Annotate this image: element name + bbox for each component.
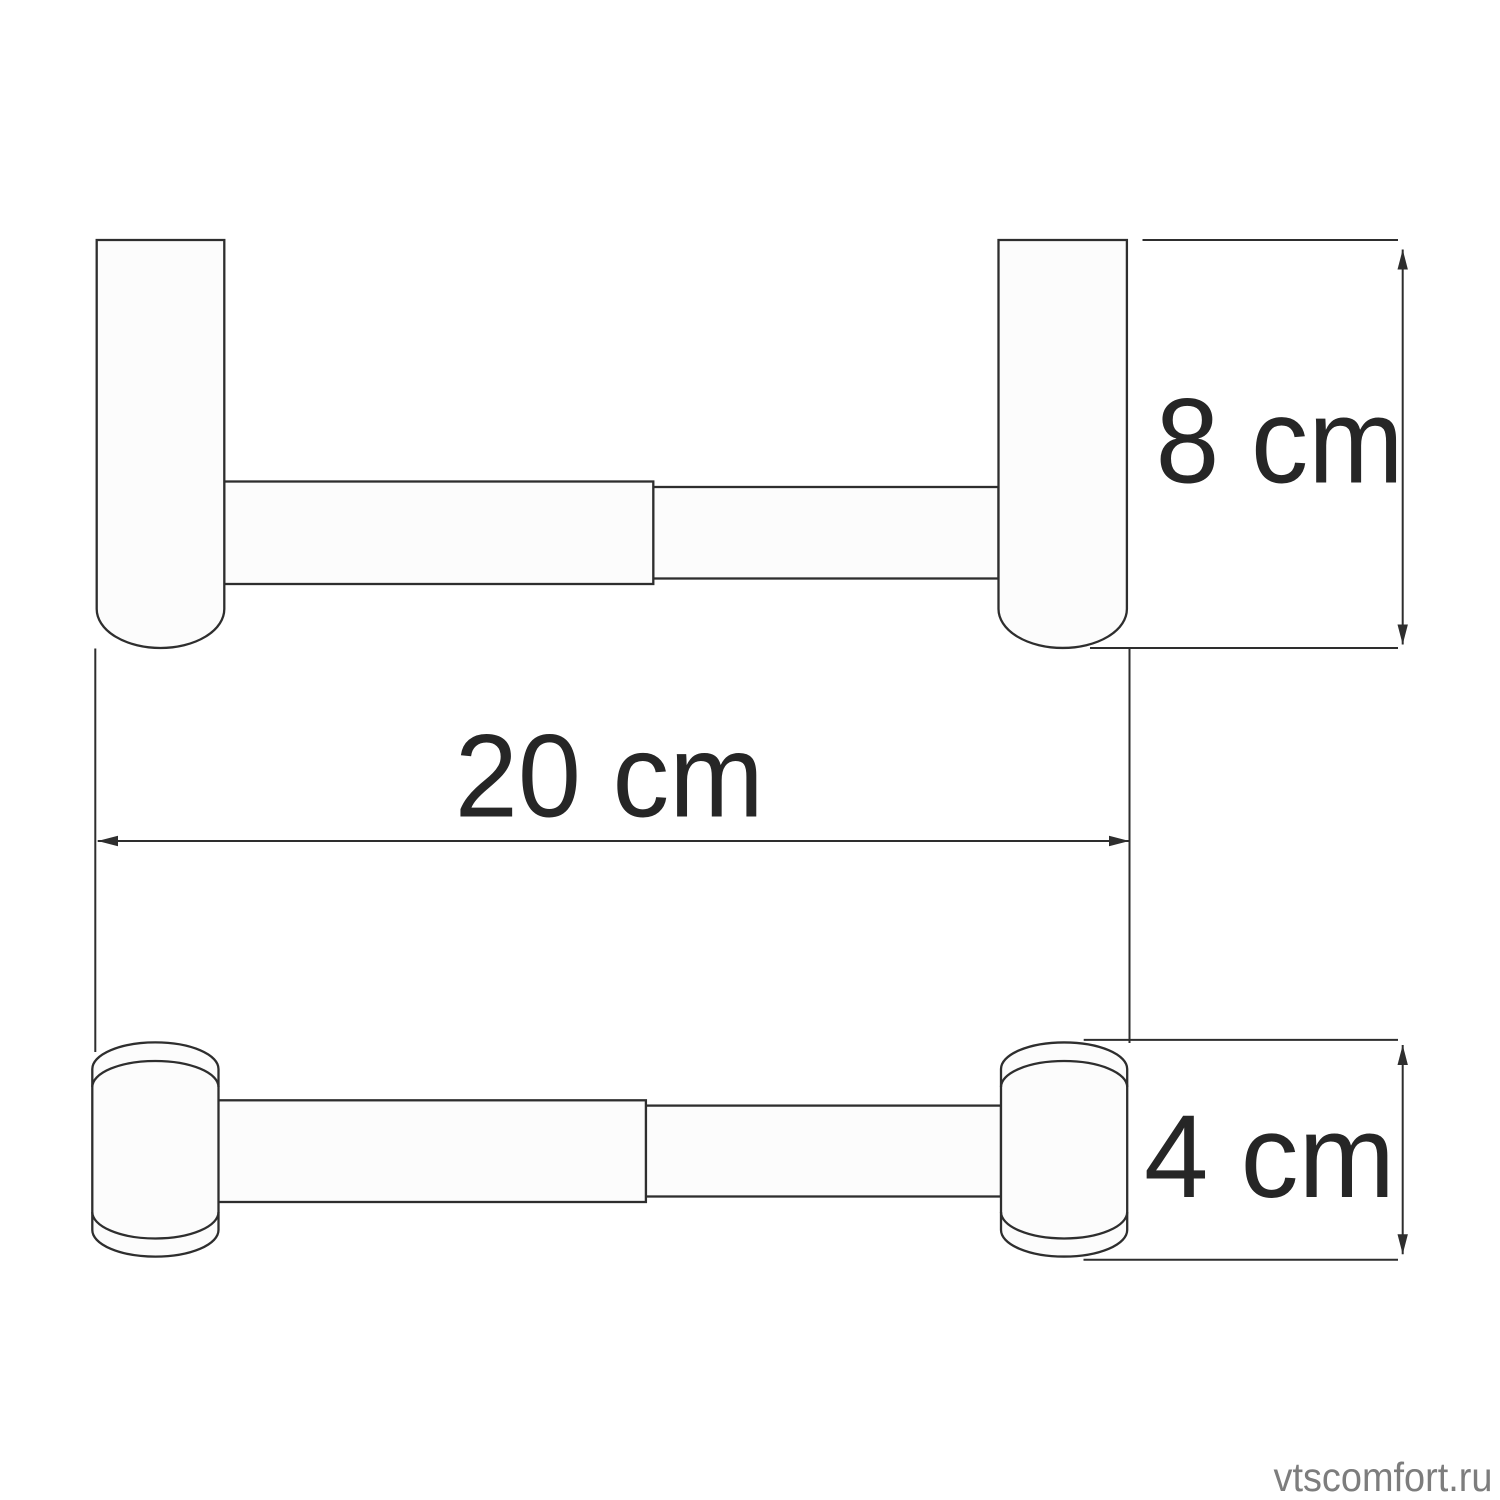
svg-text:20 cm: 20 cm [455,711,764,843]
svg-text:4 cm: 4 cm [1144,1091,1395,1223]
svg-text:vtscomfort.ru: vtscomfort.ru [1274,1454,1493,1500]
svg-text:8 cm: 8 cm [1156,373,1404,509]
